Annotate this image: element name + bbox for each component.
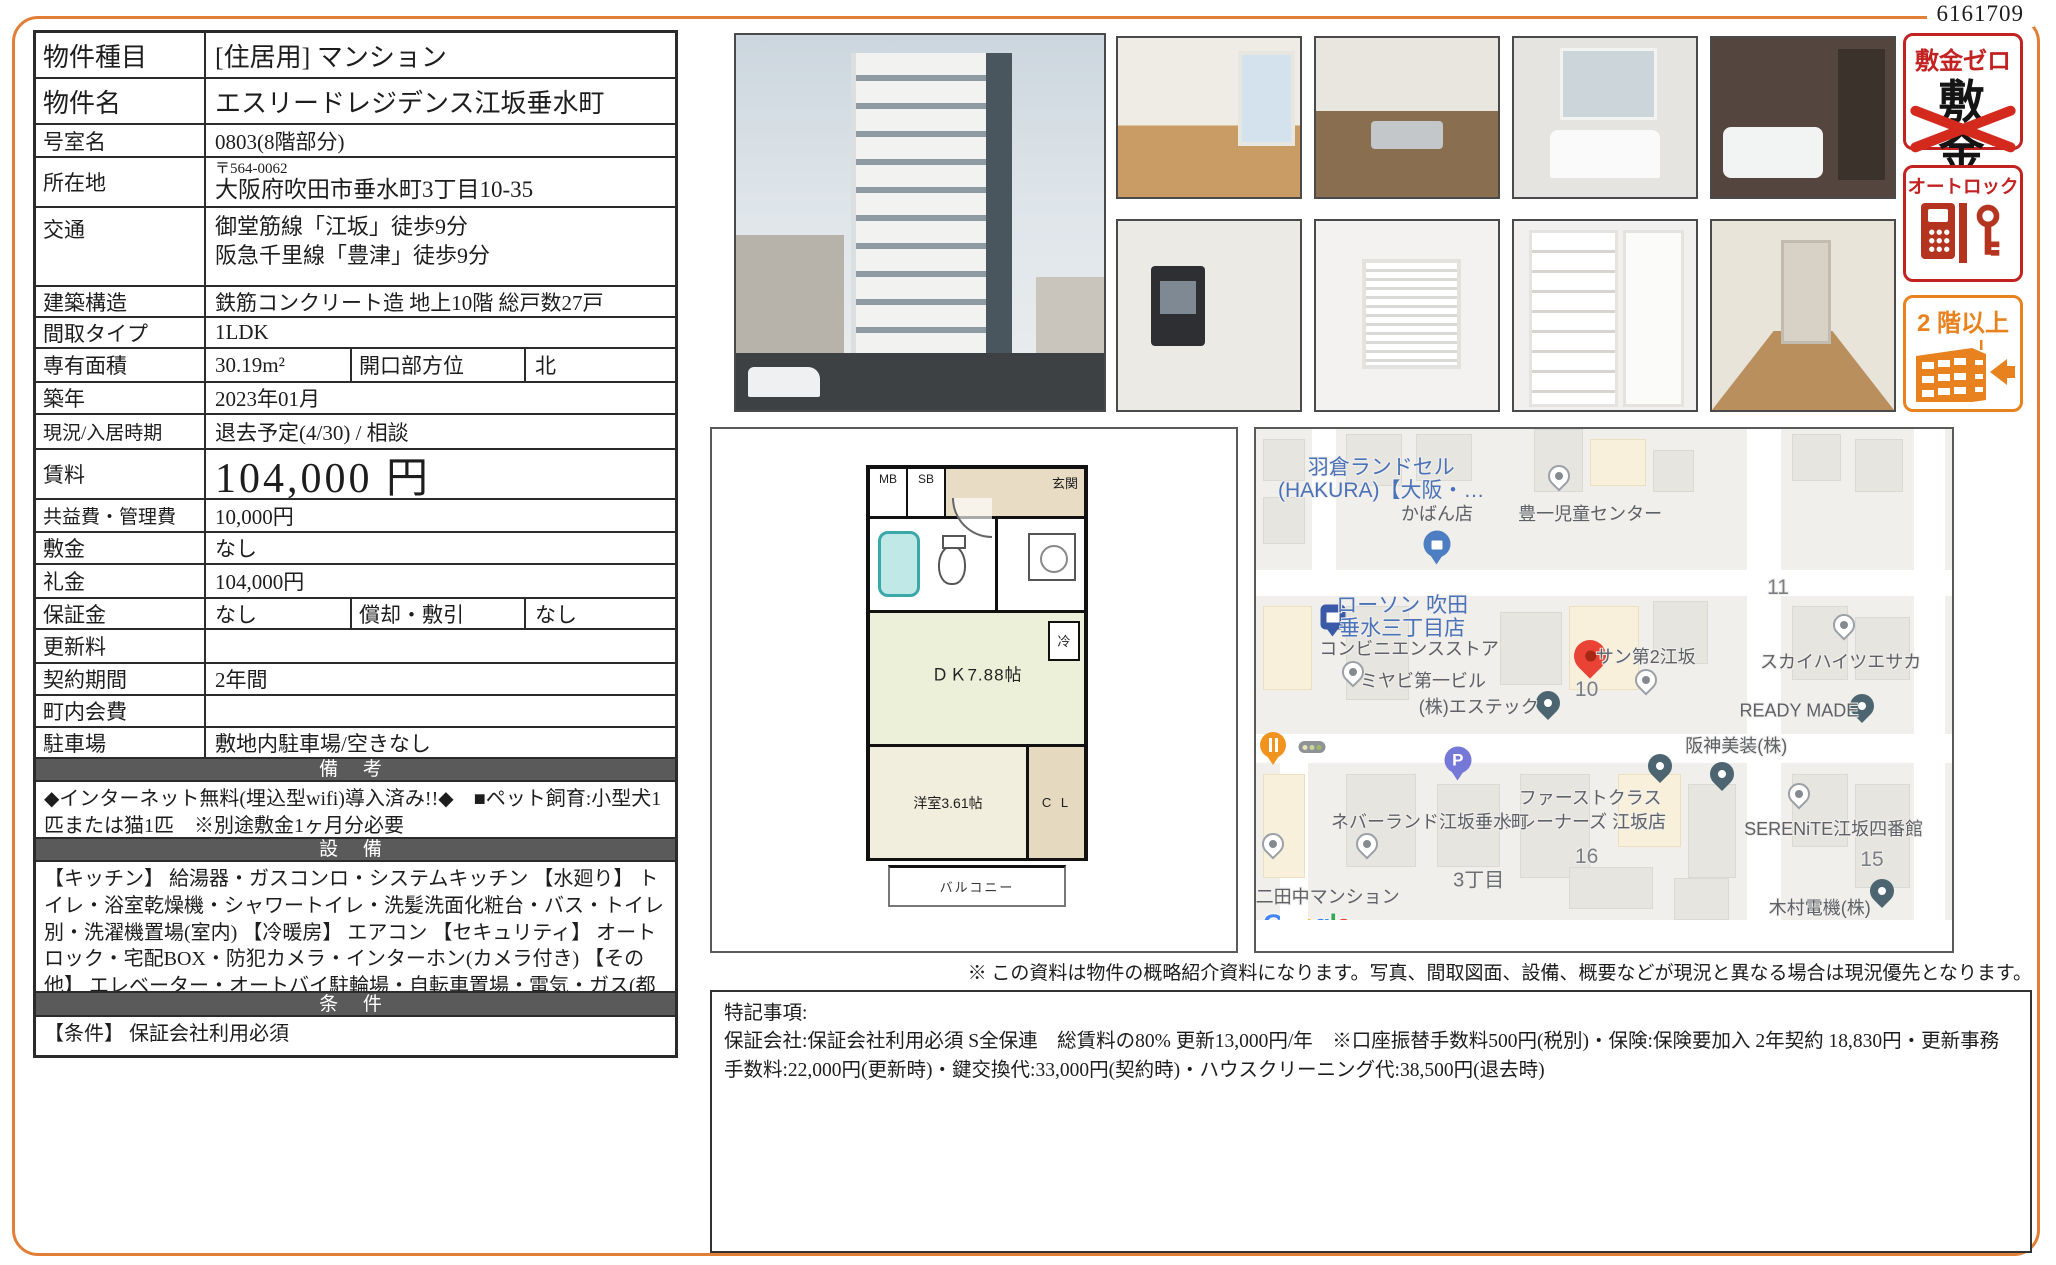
floorplan-balcony: バルコニー bbox=[888, 865, 1066, 907]
photo-washstand bbox=[1512, 36, 1698, 199]
row-value-2: 北 bbox=[526, 349, 675, 381]
transit-line: 阪急千里線「豊津」徒歩9分 bbox=[215, 242, 490, 271]
photo-building-exterior bbox=[734, 33, 1106, 412]
row-value: なし bbox=[206, 599, 352, 628]
row-value bbox=[206, 630, 675, 662]
row-value: [住居用] マンション bbox=[206, 33, 675, 77]
floorplan-closet: C L bbox=[1026, 747, 1084, 858]
row-value: 2023年01月 bbox=[206, 383, 675, 413]
photo-kitchen bbox=[1314, 36, 1500, 199]
floorplan-panel: MB SB 玄関 ＤＫ7.88帖 冷 洋室3.61帖 C L バルコニー bbox=[710, 427, 1238, 953]
map-label: READY MADE bbox=[1740, 700, 1859, 721]
row-value: 0803(8階部分) bbox=[206, 125, 675, 156]
row-label: 共益費・管理費 bbox=[36, 500, 206, 531]
map-label: 3丁目 bbox=[1453, 863, 1504, 892]
map-pin-shopping bbox=[1423, 530, 1450, 557]
photo-room bbox=[1116, 36, 1302, 199]
row-label: 号室名 bbox=[36, 125, 206, 156]
row-label: 更新料 bbox=[36, 630, 206, 662]
row-transit: 交通 御堂筋線「江坂」徒歩9分 阪急千里線「豊津」徒歩9分 bbox=[36, 208, 675, 287]
map-building bbox=[1855, 439, 1904, 491]
row-value: 1LDK bbox=[206, 318, 675, 347]
map-building bbox=[1792, 434, 1841, 481]
row-area: 専有面積 30.19m² 開口部方位 北 bbox=[36, 349, 675, 383]
map-disclaimer-note: ※ この資料は物件の概略紹介資料になります。写真、間取図面、設備、概要などが現況… bbox=[732, 958, 2032, 985]
row-rent: 賃料 104,000 円 bbox=[36, 450, 675, 500]
map-label: コンビニエンスストア bbox=[1319, 635, 1499, 661]
row-label: 交通 bbox=[36, 208, 206, 285]
bathtub-icon bbox=[878, 531, 920, 597]
map-road bbox=[1256, 920, 1952, 951]
map-road bbox=[1914, 429, 1945, 951]
photo-shoe-storage bbox=[1512, 219, 1698, 412]
photo-ventilation bbox=[1314, 219, 1500, 412]
postal-code: 〒564-0062 bbox=[215, 161, 288, 177]
badge-autolock: オートロック bbox=[1903, 165, 2023, 282]
floorplan-meter-box: MB bbox=[870, 469, 908, 516]
badge-no-deposit: 敷金ゼロ 敷金 bbox=[1903, 33, 2023, 150]
intercom-panel-icon bbox=[1921, 203, 1955, 259]
row-built-year: 築年 2023年01月 bbox=[36, 383, 675, 415]
building-with-arrow-icon bbox=[1906, 340, 2020, 411]
row-label: 賃料 bbox=[36, 450, 206, 498]
special-notes-body: 保証会社:保証会社利用必須 S全保連 総賃料の80% 更新13,000円/年 ※… bbox=[724, 1028, 2018, 1085]
crossed-out-deposit-icon: 敷金 bbox=[1915, 78, 2011, 179]
map-label: 16 bbox=[1575, 845, 1598, 869]
map-pin-restaurant bbox=[1260, 732, 1286, 758]
map-road bbox=[1747, 429, 1782, 951]
row-label: 物件種目 bbox=[36, 33, 206, 77]
row-value: 〒564-0062 大阪府吹田市垂水町3丁目10-35 bbox=[206, 158, 675, 206]
row-value bbox=[206, 696, 675, 726]
row-value: 敷地内駐車場/空きなし bbox=[206, 728, 675, 757]
map-label: 第二田中マンション bbox=[1254, 883, 1400, 909]
row-town-fee: 町内会費 bbox=[36, 696, 675, 728]
row-guarantee: 保証金 なし 償却・敷引 なし bbox=[36, 599, 675, 630]
map-label: 15 bbox=[1860, 848, 1883, 872]
map-label: 豊一児童センター bbox=[1518, 500, 1662, 526]
building-tower bbox=[851, 53, 986, 355]
row-label-2: 開口部方位 bbox=[352, 349, 526, 381]
row-label-2: 償却・敷引 bbox=[352, 599, 526, 628]
row-label: 敷金 bbox=[36, 533, 206, 563]
map-label: ファーストクラス bbox=[1519, 784, 1662, 810]
row-label: 町内会費 bbox=[36, 696, 206, 726]
row-value: 御堂筋線「江坂」徒歩9分 阪急千里線「豊津」徒歩9分 bbox=[206, 208, 675, 285]
row-label: 駐車場 bbox=[36, 728, 206, 757]
map-building bbox=[1688, 784, 1737, 878]
row-property-type: 物件種目 [住居用] マンション bbox=[36, 33, 675, 79]
badge-title: オートロック bbox=[1906, 173, 2020, 199]
row-contract-term: 契約期間 2年間 bbox=[36, 664, 675, 696]
equipment-text: 【キッチン】 給湯器・ガスコンロ・システムキッチン 【水廻り】 トイレ・浴室乾燥… bbox=[36, 862, 675, 993]
row-label: 築年 bbox=[36, 383, 206, 413]
conditions-text: 【条件】 保証会社利用必須 bbox=[36, 1017, 675, 1055]
autolock-intercom-key-icon bbox=[1906, 203, 2020, 263]
map-pin-parking bbox=[1444, 747, 1471, 774]
special-notes-title: 特記事項: bbox=[724, 1000, 2018, 1028]
spec-table: 物件種目 [住居用] マンション 物件名 エスリードレジデンス江坂垂水町 号室名… bbox=[33, 30, 678, 1058]
map-pin-traffic bbox=[1298, 741, 1325, 753]
photo-intercom bbox=[1116, 219, 1302, 412]
map-label: ミヤビ第一ビル bbox=[1360, 667, 1486, 693]
row-value: 鉄筋コンクリート造 地上10階 総戸数27戸 bbox=[206, 287, 675, 316]
map-label: 10 bbox=[1575, 678, 1598, 702]
map-label: 木村電機(株) bbox=[1769, 894, 1871, 920]
map-label: 阪神美装(株) bbox=[1685, 732, 1787, 758]
washing-machine-icon bbox=[1028, 533, 1076, 581]
section-header-equipment: 設 備 bbox=[36, 839, 675, 862]
map-label: サン第2江坂 bbox=[1596, 643, 1696, 669]
door-frame-icon bbox=[1959, 203, 1967, 263]
map-building bbox=[1569, 867, 1653, 909]
badge-second-floor-or-above: 2 階以上 bbox=[1903, 295, 2023, 412]
row-renewal-fee: 更新料 bbox=[36, 630, 675, 664]
row-label: 専有面積 bbox=[36, 349, 206, 381]
row-value: なし bbox=[206, 533, 675, 563]
row-label: 保証金 bbox=[36, 599, 206, 628]
floorplan-entrance: 玄関 bbox=[946, 469, 1084, 516]
row-maintenance-fee: 共益費・管理費 10,000円 bbox=[36, 500, 675, 533]
floorplan-utility bbox=[998, 519, 1084, 610]
section-header-conditions: 条 件 bbox=[36, 993, 675, 1017]
row-label: 建築構造 bbox=[36, 287, 206, 316]
map-label: SERENiTE江坂四番館 bbox=[1744, 815, 1923, 841]
row-room-number: 号室名 0803(8階部分) bbox=[36, 125, 675, 158]
map-building bbox=[1674, 878, 1730, 920]
map-building bbox=[1653, 450, 1695, 492]
row-structure: 建築構造 鉄筋コンクリート造 地上10階 総戸数27戸 bbox=[36, 287, 675, 318]
row-address: 所在地 〒564-0062 大阪府吹田市垂水町3丁目10-35 bbox=[36, 158, 675, 208]
row-parking: 駐車場 敷地内駐車場/空きなし bbox=[36, 728, 675, 759]
toilet-icon bbox=[938, 545, 966, 585]
row-key-money: 礼金 104,000円 bbox=[36, 565, 675, 599]
map-label: ネバーランド江坂垂水町 bbox=[1331, 808, 1529, 834]
floorplan-drawing: MB SB 玄関 ＤＫ7.88帖 冷 洋室3.61帖 C L bbox=[866, 465, 1088, 861]
badge-title: 敷金ゼロ bbox=[1906, 41, 2020, 76]
row-label: 物件名 bbox=[36, 79, 206, 123]
address-text: 大阪府吹田市垂水町3丁目10-35 bbox=[215, 178, 533, 203]
floorplan-western-room: 洋室3.61帖 bbox=[870, 747, 1026, 858]
photo-hallway bbox=[1710, 219, 1896, 412]
row-value: 10,000円 bbox=[206, 500, 675, 531]
remarks-text: ◆インターネット無料(埋込型wifi)導入済み!!◆ ■ペット飼育:小型犬1匹ま… bbox=[36, 782, 675, 839]
map-building bbox=[1263, 606, 1312, 690]
row-label: 礼金 bbox=[36, 565, 206, 597]
row-deposit: 敷金 なし bbox=[36, 533, 675, 565]
key-icon bbox=[1971, 203, 2005, 263]
map-label: 11 bbox=[1767, 576, 1789, 600]
map-label: かばん店 bbox=[1401, 500, 1473, 526]
row-value: 30.19m² bbox=[206, 349, 352, 381]
document-number: 6161709 bbox=[1927, 1, 2035, 27]
row-value: エスリードレジデンス江坂垂水町 bbox=[206, 79, 675, 123]
rent-amount: 104,000 円 bbox=[206, 450, 675, 498]
map-canvas: Google Map data ©2023 羽倉ランドセル(HAKURA)【大阪… bbox=[1254, 427, 1954, 953]
row-value-2: なし bbox=[526, 599, 675, 628]
photo-bathroom bbox=[1710, 36, 1896, 199]
row-layout-type: 間取タイプ 1LDK bbox=[36, 318, 675, 349]
map-road bbox=[1256, 734, 1952, 763]
row-label: 契約期間 bbox=[36, 664, 206, 694]
row-label: 現況/入居時期 bbox=[36, 415, 206, 448]
row-property-name: 物件名 エスリードレジデンス江坂垂水町 bbox=[36, 79, 675, 125]
row-value: 104,000円 bbox=[206, 565, 675, 597]
map-building bbox=[1263, 774, 1305, 878]
refrigerator-marker: 冷 bbox=[1048, 621, 1080, 661]
section-header-remarks: 備 考 bbox=[36, 759, 675, 782]
badge-title: 2 階以上 bbox=[1906, 303, 2020, 338]
building-glass-edge bbox=[986, 53, 1012, 355]
special-notes-box: 特記事項: 保証会社:保証会社利用必須 S全保連 総賃料の80% 更新13,00… bbox=[710, 990, 2032, 1253]
map-building bbox=[1590, 439, 1646, 486]
floorplan-shoe-box: SB bbox=[908, 469, 946, 516]
floorplan-dk: ＤＫ7.88帖 冷 bbox=[870, 613, 1084, 747]
parked-car bbox=[748, 367, 820, 397]
map-label: スカイハイツエサカ bbox=[1760, 648, 1921, 674]
row-value: 2年間 bbox=[206, 664, 675, 694]
map-label: (株)エステック bbox=[1419, 693, 1539, 719]
map-building bbox=[1500, 612, 1563, 685]
row-label: 間取タイプ bbox=[36, 318, 206, 347]
row-label: 所在地 bbox=[36, 158, 206, 206]
transit-line: 御堂筋線「江坂」徒歩9分 bbox=[215, 213, 468, 242]
